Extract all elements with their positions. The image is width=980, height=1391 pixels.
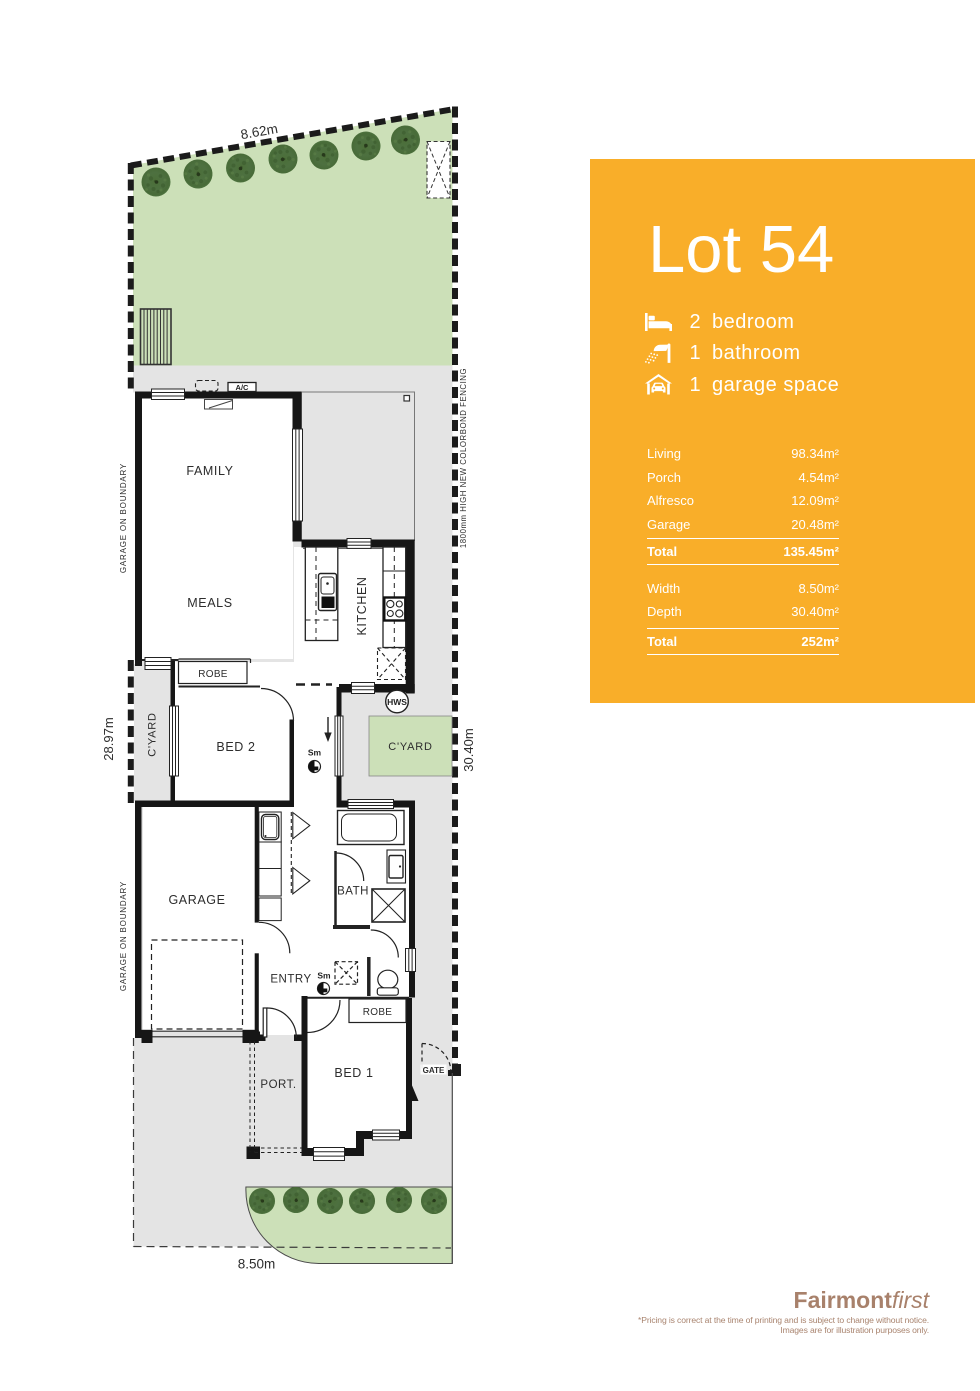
svg-text:MEALS: MEALS	[187, 596, 232, 610]
svg-text:FAMILY: FAMILY	[186, 464, 233, 478]
svg-text:PORT.: PORT.	[260, 1079, 296, 1091]
svg-text:28.97m: 28.97m	[101, 717, 116, 760]
svg-text:GARAGE ON BOUNDARY: GARAGE ON BOUNDARY	[119, 881, 128, 991]
svg-text:8.50m: 8.50m	[238, 1257, 276, 1272]
svg-text:GARAGE: GARAGE	[168, 893, 225, 907]
svg-text:C'YARD: C'YARD	[147, 712, 159, 757]
svg-text:ENTRY: ENTRY	[270, 974, 311, 986]
svg-text:ROBE: ROBE	[198, 669, 228, 680]
svg-text:KITCHEN: KITCHEN	[355, 576, 369, 635]
svg-text:BED 1: BED 1	[334, 1066, 373, 1080]
svg-text:C'YARD: C'YARD	[388, 741, 433, 753]
svg-text:GARAGE ON BOUNDARY: GARAGE ON BOUNDARY	[119, 463, 128, 573]
svg-text:BED 2: BED 2	[216, 740, 255, 754]
svg-text:ROBE: ROBE	[363, 1007, 393, 1018]
svg-text:1800mm HIGH NEW COLORBOND FENC: 1800mm HIGH NEW COLORBOND FENCING	[459, 368, 468, 548]
svg-text:Sm: Sm	[308, 748, 322, 758]
svg-text:HWS: HWS	[387, 697, 407, 707]
svg-text:A/C: A/C	[236, 383, 250, 392]
svg-text:8.62m: 8.62m	[239, 121, 279, 142]
svg-text:Sm: Sm	[317, 971, 331, 981]
svg-text:GATE: GATE	[423, 1066, 445, 1075]
svg-text:BATH: BATH	[337, 886, 369, 898]
svg-text:30.40m: 30.40m	[461, 728, 476, 771]
